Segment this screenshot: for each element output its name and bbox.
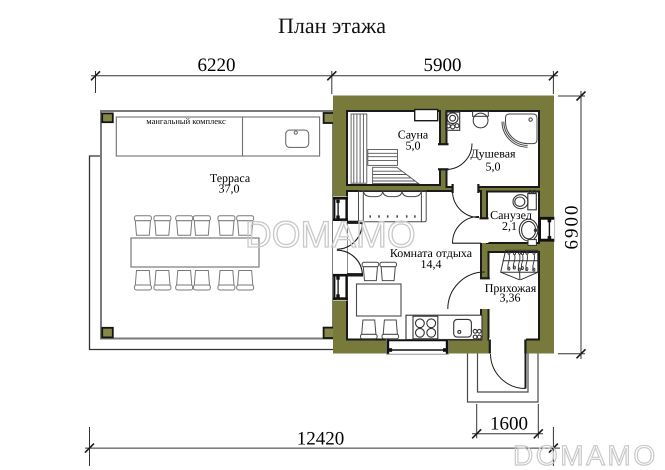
svg-text:12420: 12420: [297, 429, 345, 450]
svg-text:План этажа: План этажа: [278, 13, 386, 38]
svg-text:6220: 6220: [198, 55, 236, 76]
svg-text:5900: 5900: [424, 55, 462, 76]
svg-text:5,0: 5,0: [406, 139, 421, 153]
svg-text:2,1: 2,1: [502, 219, 517, 233]
svg-text:14,4: 14,4: [421, 257, 442, 271]
svg-text:6900: 6900: [562, 204, 583, 250]
svg-text:37,0: 37,0: [219, 182, 240, 196]
svg-text:3,36: 3,36: [500, 291, 521, 305]
svg-text:5,0: 5,0: [486, 160, 501, 174]
svg-text:мангальный комплекс: мангальный комплекс: [146, 116, 226, 126]
svg-text:DOMAMO: DOMAMO: [245, 214, 416, 255]
svg-text:1600: 1600: [490, 414, 528, 435]
svg-text:Душевая: Душевая: [470, 147, 516, 161]
svg-text:DOMAMO: DOMAMO: [513, 440, 658, 470]
